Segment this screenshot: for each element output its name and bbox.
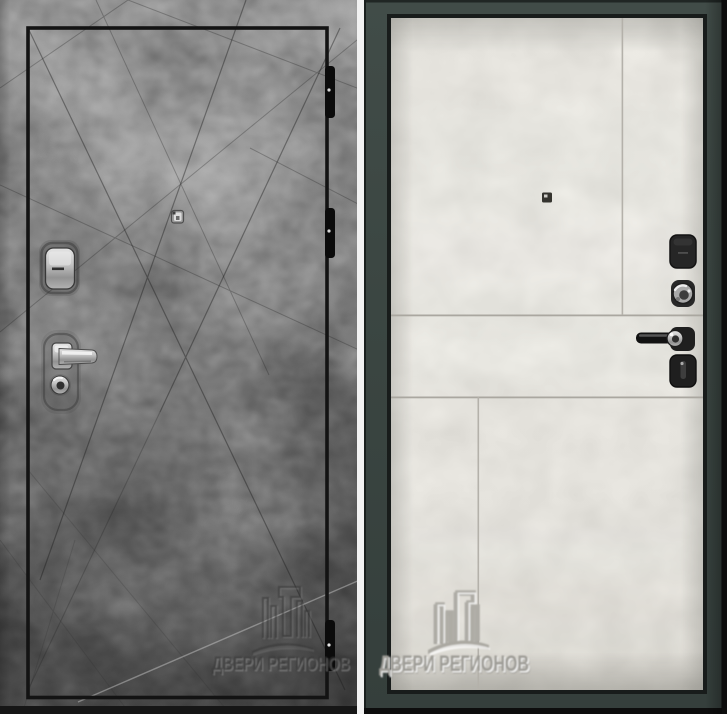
svg-text:ДВЕРИ РЕГИОНОВ: ДВЕРИ РЕГИОНОВ xyxy=(379,651,529,676)
svg-text:ДВЕРИ РЕГИОНОВ: ДВЕРИ РЕГИОНОВ xyxy=(212,653,350,675)
